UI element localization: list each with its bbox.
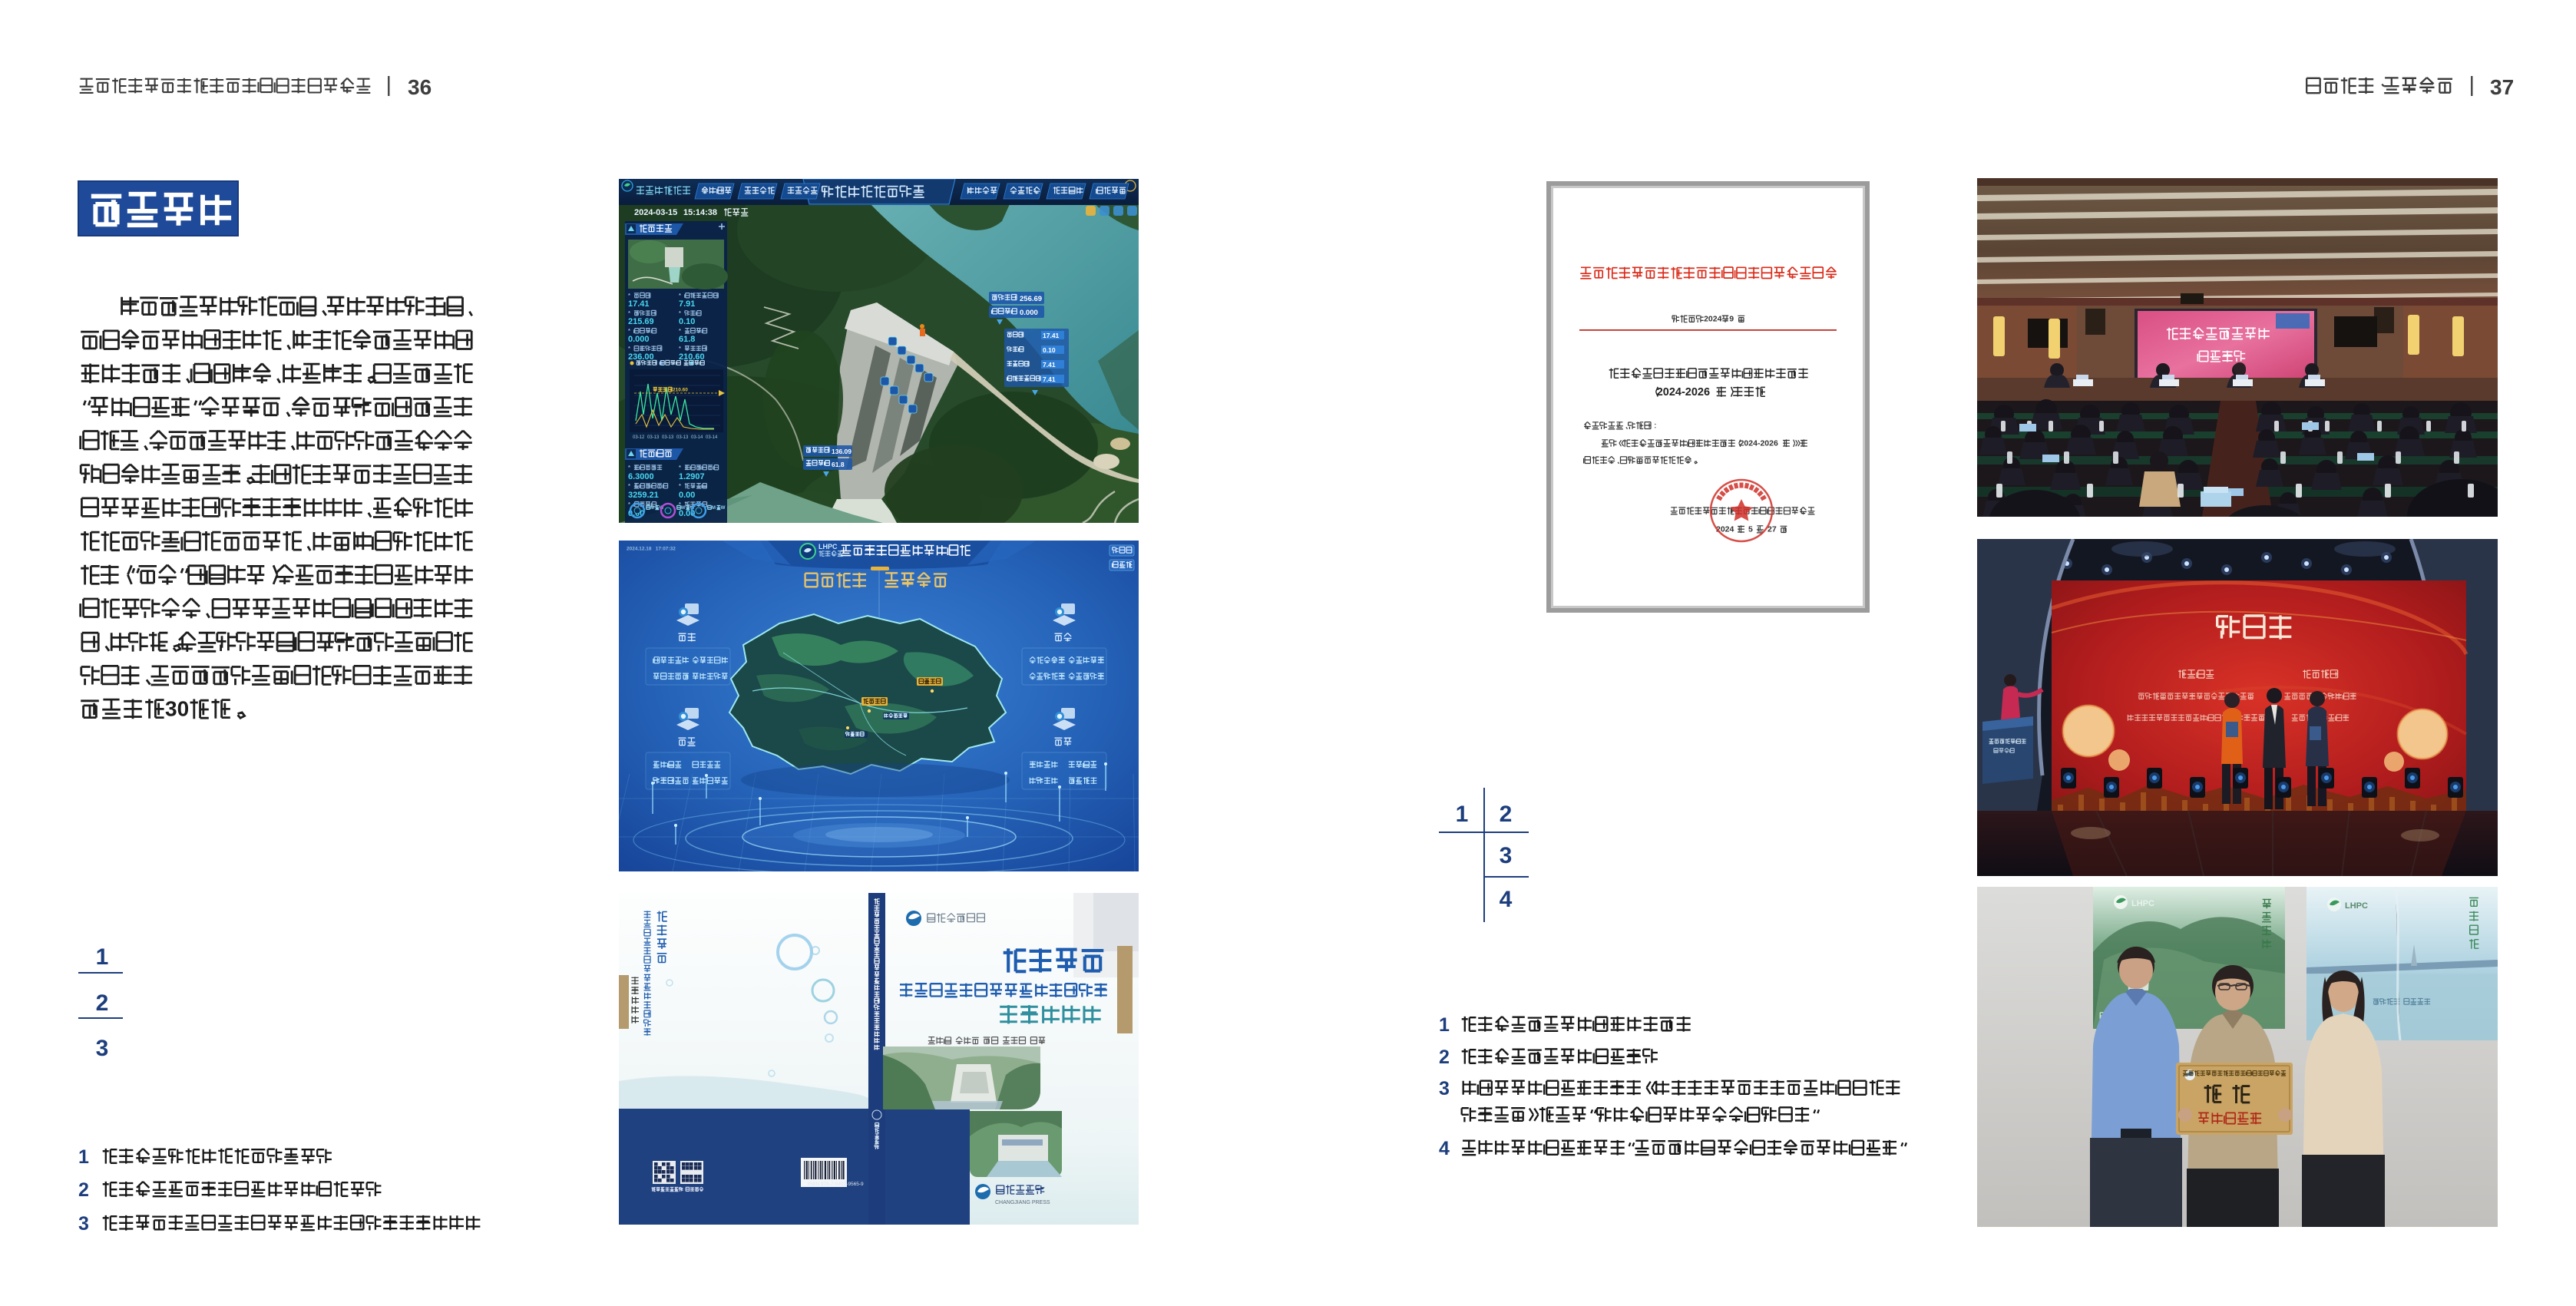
svg-text:2024-2026: 2024-2026 (1657, 386, 1710, 398)
svg-text:3259.21: 3259.21 (628, 491, 659, 500)
svg-text:17.41: 17.41 (1043, 332, 1060, 339)
svg-text:ISBN 978-7-5492-9565-9: ISBN 978-7-5492-9565-9 (808, 1182, 864, 1187)
svg-text:*: * (679, 345, 681, 352)
svg-text:*: * (628, 292, 630, 299)
svg-text:3: 3 (78, 1213, 89, 1235)
svg-text:M: M (650, 506, 654, 511)
svg-text:2024: 2024 (1716, 525, 1734, 534)
svg-text:1: 1 (96, 944, 109, 970)
svg-text:37: 37 (2490, 75, 2514, 99)
svg-text:7.41: 7.41 (1043, 375, 1056, 383)
svg-text:2: 2 (1500, 802, 1513, 827)
svg-text:5: 5 (1748, 525, 1753, 534)
svg-text:M: M (712, 506, 716, 511)
svg-text:210.60: 210.60 (673, 387, 688, 392)
svg-text:*: * (628, 345, 630, 352)
svg-text:1: 1 (1456, 802, 1469, 827)
svg-text:1: 1 (78, 1146, 89, 1168)
svg-text:2024-2026: 2024-2026 (1740, 439, 1778, 448)
svg-text:*: * (679, 327, 681, 334)
svg-text:6.3000: 6.3000 (628, 472, 654, 481)
svg-text:17:07:32: 17:07:32 (656, 546, 676, 551)
svg-text:3: 3 (1439, 1078, 1450, 1099)
svg-text:0.00: 0.00 (679, 491, 695, 500)
svg-text:*: * (628, 327, 630, 334)
svg-text:9: 9 (1729, 315, 1734, 324)
svg-text:30: 30 (165, 697, 189, 721)
svg-text:03-13: 03-13 (647, 435, 660, 440)
svg-text:215.69: 215.69 (628, 317, 654, 326)
svg-text:7.91: 7.91 (679, 299, 695, 309)
svg-text:15:14:38: 15:14:38 (683, 208, 717, 217)
svg-text:2: 2 (96, 990, 109, 1016)
svg-text:1: 1 (1439, 1014, 1450, 1036)
svg-text:*: * (628, 309, 630, 316)
svg-text:36: 36 (408, 75, 432, 99)
svg-text:17.41: 17.41 (628, 299, 650, 309)
svg-text:136.09: 136.09 (832, 448, 852, 455)
svg-text:0.000: 0.000 (628, 335, 650, 344)
svg-text:1.2907: 1.2907 (679, 472, 705, 481)
svg-text:3: 3 (96, 1036, 109, 1061)
svg-text:0.000: 0.000 (1020, 309, 1038, 317)
svg-text:LHPC: LHPC (818, 543, 838, 551)
svg-text:CHANGJIANG PRESS: CHANGJIANG PRESS (995, 1200, 1050, 1205)
svg-text:M: M (681, 506, 685, 511)
svg-text:7.41: 7.41 (1043, 361, 1056, 369)
svg-text:3: 3 (1500, 843, 1513, 868)
svg-text:LHPC: LHPC (2131, 899, 2154, 908)
svg-text:03-13: 03-13 (676, 435, 689, 440)
svg-text:4: 4 (1439, 1138, 1450, 1159)
svg-text:03-14: 03-14 (691, 435, 703, 440)
svg-text:0.10: 0.10 (1043, 346, 1056, 354)
svg-text:2024: 2024 (1704, 315, 1722, 324)
svg-text:236.00: 236.00 (628, 352, 654, 362)
svg-text:*: * (628, 501, 630, 508)
svg-text:*: * (679, 482, 681, 489)
svg-text:*: * (679, 309, 681, 316)
svg-text:0.10: 0.10 (679, 317, 695, 326)
svg-text:61.8: 61.8 (679, 335, 695, 344)
svg-text:*: * (628, 482, 630, 489)
svg-text:03-13: 03-13 (662, 435, 674, 440)
svg-text:*: * (628, 464, 630, 471)
svg-text:256.69: 256.69 (1020, 295, 1042, 303)
svg-text:*: * (679, 292, 681, 299)
svg-text:2024-03-15: 2024-03-15 (634, 208, 677, 217)
svg-text:2: 2 (1439, 1046, 1450, 1068)
svg-text:03-14: 03-14 (706, 435, 718, 440)
svg-text:03-12: 03-12 (633, 435, 645, 440)
svg-text:2024.12.18: 2024.12.18 (627, 546, 652, 551)
svg-text:LHPC: LHPC (2345, 901, 2368, 911)
svg-text:2: 2 (78, 1179, 89, 1201)
svg-text:61.8: 61.8 (832, 461, 845, 468)
svg-text:*: * (679, 464, 681, 471)
svg-text:4: 4 (1500, 887, 1513, 912)
svg-text:W: W (721, 506, 726, 511)
